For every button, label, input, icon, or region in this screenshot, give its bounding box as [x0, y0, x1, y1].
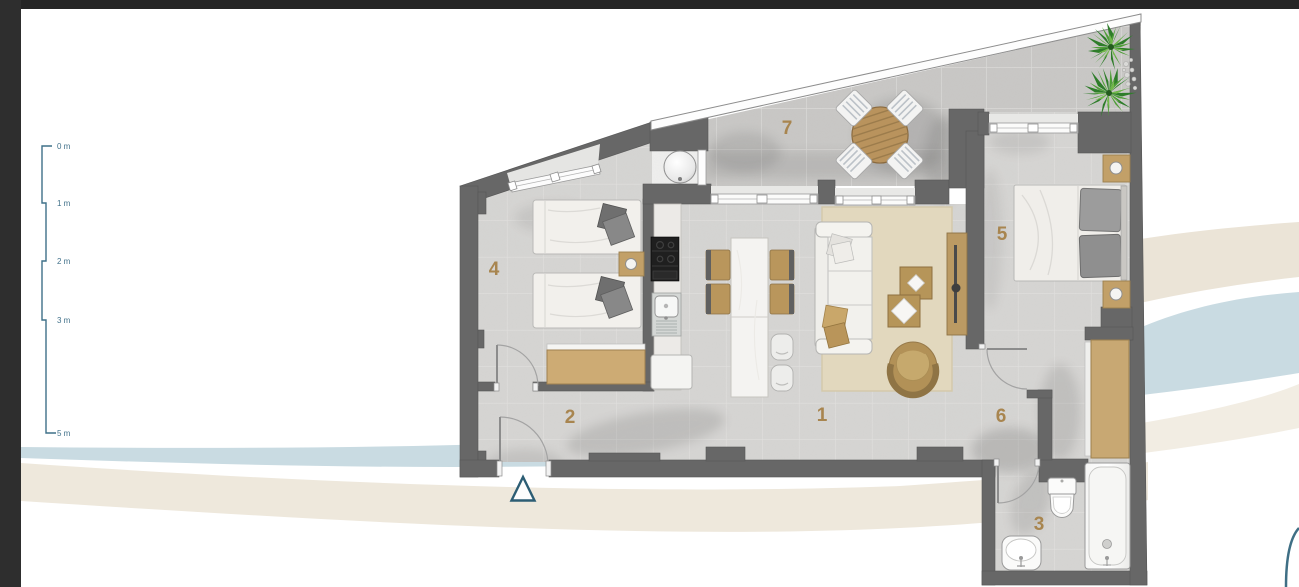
svg-text:7: 7: [782, 118, 793, 139]
svg-text:2: 2: [565, 407, 576, 428]
svg-text:1 m: 1 m: [57, 199, 71, 208]
svg-text:3 m: 3 m: [57, 316, 71, 325]
svg-text:0 m: 0 m: [57, 142, 71, 151]
svg-text:1: 1: [817, 405, 828, 426]
svg-text:4: 4: [489, 259, 500, 280]
svg-text:5: 5: [997, 224, 1008, 245]
svg-text:5 m: 5 m: [57, 429, 71, 438]
svg-text:6: 6: [996, 406, 1007, 427]
svg-text:3: 3: [1034, 514, 1045, 535]
svg-text:2 m: 2 m: [57, 257, 71, 266]
